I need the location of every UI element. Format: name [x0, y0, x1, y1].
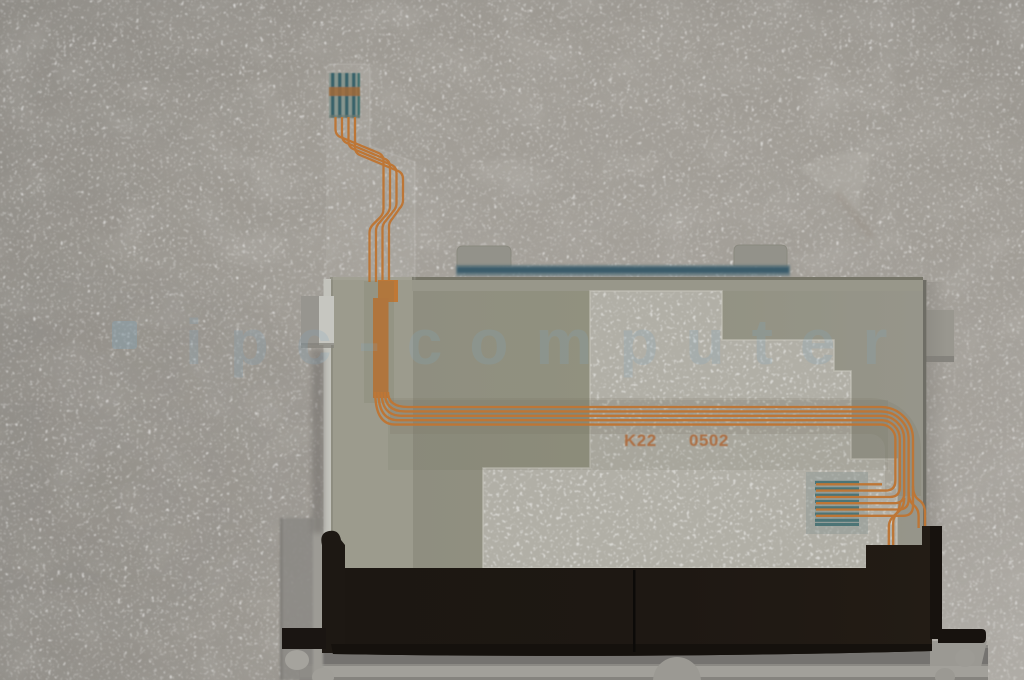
svg-text:0502: 0502 [689, 431, 729, 450]
svg-text:ipc-computer: ipc-computer [185, 306, 914, 378]
svg-text:K22: K22 [624, 431, 657, 450]
